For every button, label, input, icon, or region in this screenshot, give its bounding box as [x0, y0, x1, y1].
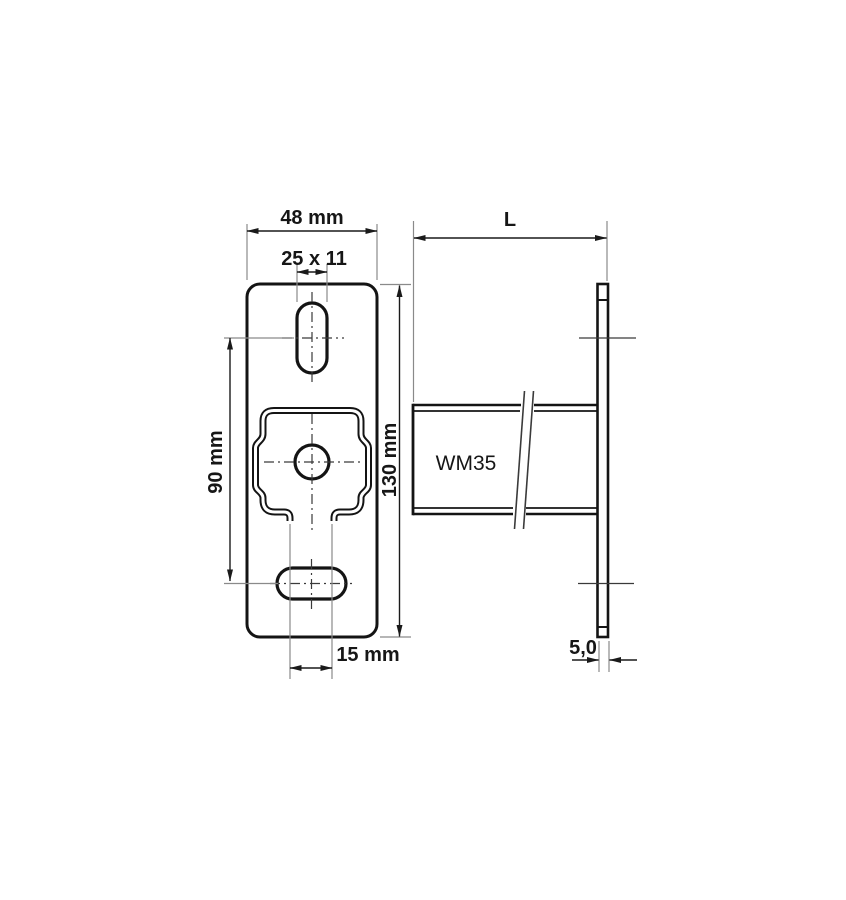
- background: [0, 0, 846, 900]
- dim-label-slot-spacing: 90 mm: [205, 430, 227, 493]
- dim-label-length: L: [504, 209, 516, 231]
- dim-label-top-slot: 25 x 11: [281, 248, 347, 270]
- dim-label-width: 48 mm: [280, 207, 343, 229]
- dim-label-height: 130 mm: [379, 423, 401, 498]
- dim-label-bottom-opening: 15 mm: [336, 644, 399, 666]
- product-label: WM35: [436, 452, 497, 475]
- technical-drawing: 48 mm 25 x 11 90 mm 130 mm 15 mm: [0, 0, 846, 900]
- dimension-top-slot: 25 x 11: [281, 248, 347, 272]
- drawing-canvas: 48 mm 25 x 11 90 mm 130 mm 15 mm: [0, 0, 846, 900]
- dim-label-thickness: 5,0: [569, 637, 597, 659]
